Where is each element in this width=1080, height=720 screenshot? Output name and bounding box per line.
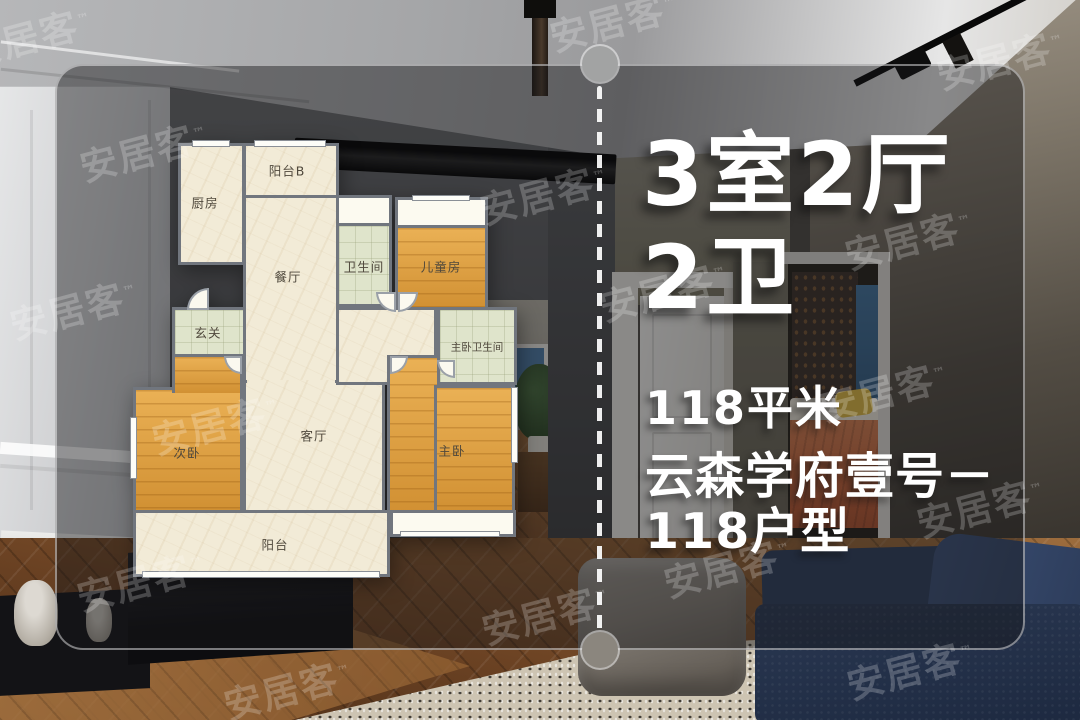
window — [400, 531, 500, 537]
vase — [14, 580, 58, 646]
room-label-kitchen: 厨房 — [191, 193, 218, 212]
window — [412, 195, 470, 201]
bath-closet — [336, 195, 392, 226]
window — [254, 140, 326, 147]
room-label-bathroom: 卫生间 — [344, 257, 385, 276]
room-label-dining: 餐厅 — [274, 267, 301, 286]
room-label-foyer: 玄关 — [194, 323, 221, 342]
door-arc — [187, 288, 209, 310]
room-label-master-bathroom: 主卧卫生间 — [451, 340, 504, 355]
room-label-master-bedroom: 主卧 — [438, 441, 465, 460]
room-master-bedroom — [387, 355, 440, 513]
room-label-balcony-b: 阳台B — [269, 161, 306, 180]
window — [511, 387, 518, 463]
room-label-kids: 儿童房 — [421, 257, 462, 276]
listing-promo-image: 厨房 阳台B 餐厅 卫生间 儿童房 玄关 主卧卫生间 次卧 客厅 主卧 阳台 3… — [0, 0, 1080, 720]
kids-bed-strip — [395, 197, 488, 228]
window — [130, 417, 137, 479]
room-label-balcony: 阳台 — [261, 535, 288, 554]
room-label-living: 客厅 — [300, 426, 327, 445]
ticket-notch-bottom — [582, 632, 618, 668]
floor-plan: 厨房 阳台B 餐厅 卫生间 儿童房 玄关 主卧卫生间 次卧 客厅 主卧 阳台 — [130, 140, 522, 580]
